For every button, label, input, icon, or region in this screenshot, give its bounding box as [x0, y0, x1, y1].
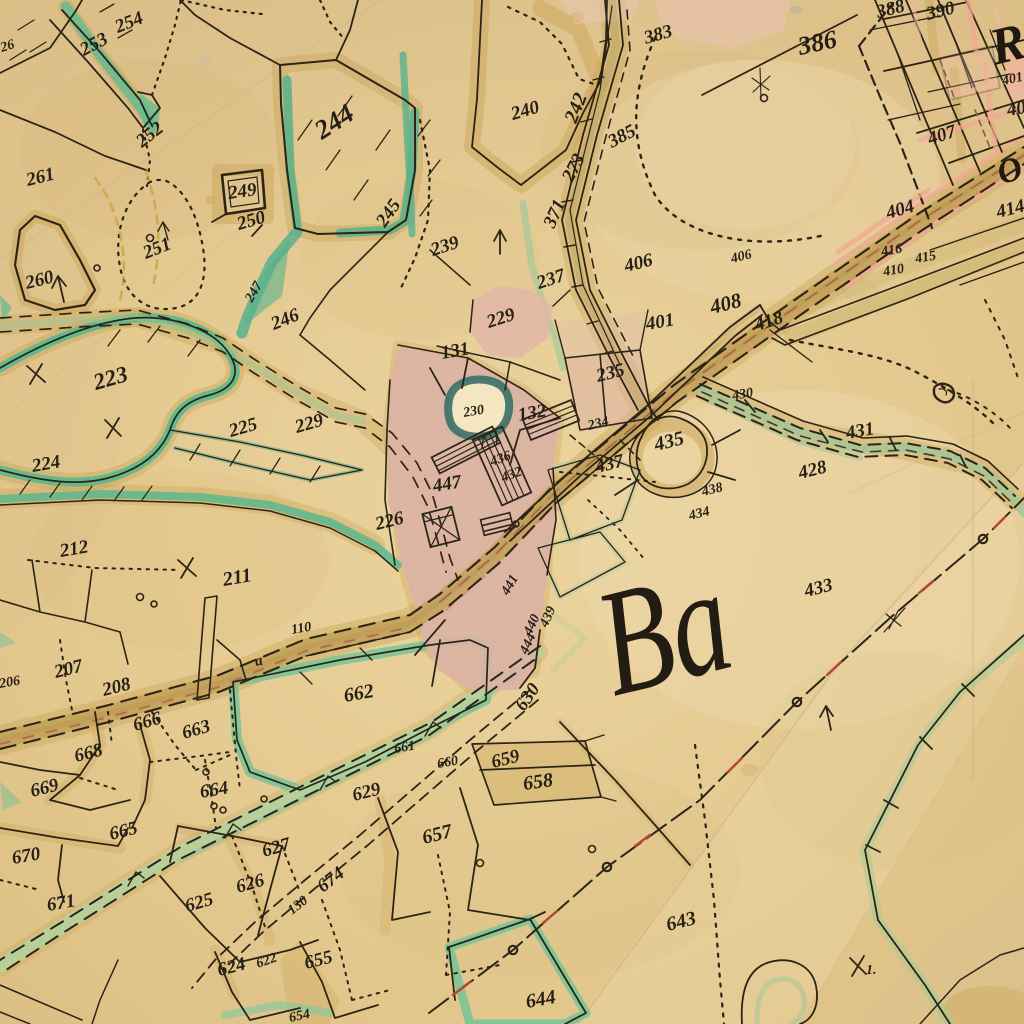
svg-text:1.: 1.	[866, 963, 877, 978]
svg-text:249: 249	[226, 179, 259, 204]
svg-text:658: 658	[522, 769, 555, 795]
